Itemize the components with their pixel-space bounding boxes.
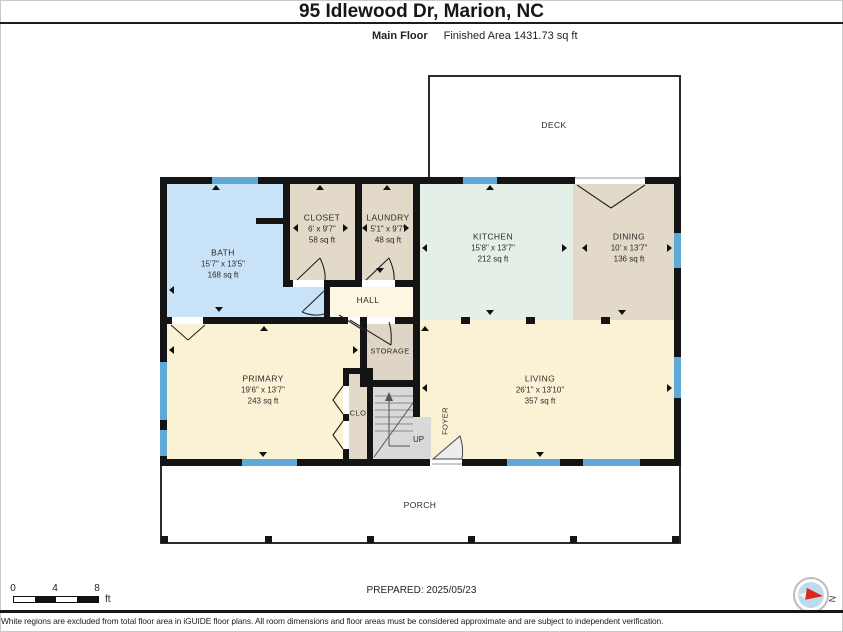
porch-post [265, 536, 272, 543]
compass-icon: N [793, 577, 829, 613]
label-living: LIVING26'1" x 13'10"357 sq ft [516, 373, 564, 406]
wall-segment [343, 449, 349, 459]
measure-arrow-icon [293, 224, 298, 232]
floor-plan-page: { "header": { "title": "95 Idlewood Dr, … [0, 0, 843, 632]
wall-segment [160, 177, 212, 184]
measure-arrow-icon [316, 185, 324, 190]
label-storage: STORAGE [370, 347, 409, 358]
measure-arrow-icon [383, 185, 391, 190]
wall-segment [462, 459, 507, 466]
wall-segment [395, 280, 420, 287]
measure-arrow-icon [618, 310, 626, 315]
header-divider [0, 22, 843, 24]
porch-post [161, 536, 168, 543]
measure-arrow-icon [212, 185, 220, 190]
wall-stub [461, 317, 470, 324]
wall-segment [355, 184, 362, 280]
measure-arrow-icon [536, 452, 544, 457]
porch-post [672, 536, 679, 543]
wall-stub [526, 317, 535, 324]
measure-arrow-icon [582, 244, 587, 252]
measure-arrow-icon [562, 244, 567, 252]
floor-label: Main Floor [372, 30, 428, 42]
measure-arrow-icon [422, 244, 427, 252]
page-title: 95 Idlewood Dr, Marion, NC [0, 1, 843, 23]
measure-arrow-icon [343, 224, 348, 232]
compass-needle [805, 588, 824, 602]
wall-segment [160, 420, 167, 430]
porch-post [468, 536, 475, 543]
measure-arrow-icon [376, 268, 384, 273]
window [160, 430, 167, 456]
scale-bar-strip [13, 596, 99, 603]
label-deck: DECK [541, 120, 566, 132]
wall-segment [160, 177, 167, 362]
measure-arrow-icon [353, 346, 358, 354]
window [583, 459, 640, 466]
wall-segment [256, 218, 290, 224]
wall-segment [283, 184, 290, 280]
porch-post [367, 536, 374, 543]
label-dining: DINING10' x 13'7"136 sq ft [611, 231, 648, 264]
finished-area-label: Finished Area 1431.73 sq ft [444, 30, 578, 42]
label-closet: CLOSET6' x 9'7"58 sq ft [304, 212, 340, 245]
window [463, 177, 497, 184]
window [674, 357, 681, 398]
wall-segment [283, 280, 293, 287]
wall-segment [343, 414, 349, 421]
measure-arrow-icon [169, 346, 174, 354]
wall-segment [297, 459, 430, 466]
prepared-date: PREPARED: 2025/05/23 [0, 585, 843, 596]
room-bath [283, 287, 324, 317]
measure-arrow-icon [259, 452, 267, 457]
wall-segment [674, 398, 681, 466]
measure-arrow-icon [260, 326, 268, 331]
wall-segment [560, 459, 583, 466]
floor-subtitle: Main FloorFinished Area 1431.73 sq ft [372, 30, 578, 42]
label-porch: PORCH [404, 500, 437, 512]
wall-segment [674, 177, 681, 233]
measure-arrow-icon [169, 286, 174, 294]
label-hall: HALL [357, 295, 380, 307]
measure-arrow-icon [325, 288, 330, 296]
window [507, 459, 560, 466]
measure-arrow-icon [486, 185, 494, 190]
measure-arrow-icon [486, 310, 494, 315]
measure-arrow-icon [667, 244, 672, 252]
measure-arrow-icon [215, 307, 223, 312]
wall-segment [343, 368, 349, 386]
window [242, 459, 297, 466]
wall-segment [160, 459, 242, 466]
wall-segment [324, 280, 362, 287]
compass-north-label: N [827, 595, 838, 603]
window [160, 362, 167, 420]
wall-segment [160, 317, 172, 324]
wall-stub [601, 317, 610, 324]
wall-segment [395, 317, 420, 324]
footer-divider [0, 610, 843, 613]
window [212, 177, 258, 184]
measure-arrow-icon [362, 224, 367, 232]
measure-arrow-icon [422, 384, 427, 392]
wall-segment [258, 177, 463, 184]
measure-arrow-icon [404, 224, 409, 232]
label-bath: BATH15'7" x 13'5"168 sq ft [201, 247, 245, 280]
label-up: UP [413, 435, 424, 444]
window [674, 233, 681, 268]
disclaimer-text: White regions are excluded from total fl… [1, 616, 663, 626]
label-kitchen: KITCHEN15'8" x 13'7"212 sq ft [471, 231, 515, 264]
label-foyer: FOYER [441, 407, 452, 435]
label-primary: PRIMARY19'6" x 13'7"243 sq ft [241, 373, 285, 406]
staircase [373, 387, 413, 459]
wall-segment [497, 177, 575, 184]
measure-arrow-icon [421, 326, 429, 331]
wall-segment [203, 317, 348, 324]
wall-segment [674, 268, 681, 357]
measure-arrow-icon [667, 384, 672, 392]
wall-segment [160, 456, 167, 466]
label-clo: CLO [350, 409, 367, 420]
wall-segment [367, 368, 373, 459]
porch-post [570, 536, 577, 543]
